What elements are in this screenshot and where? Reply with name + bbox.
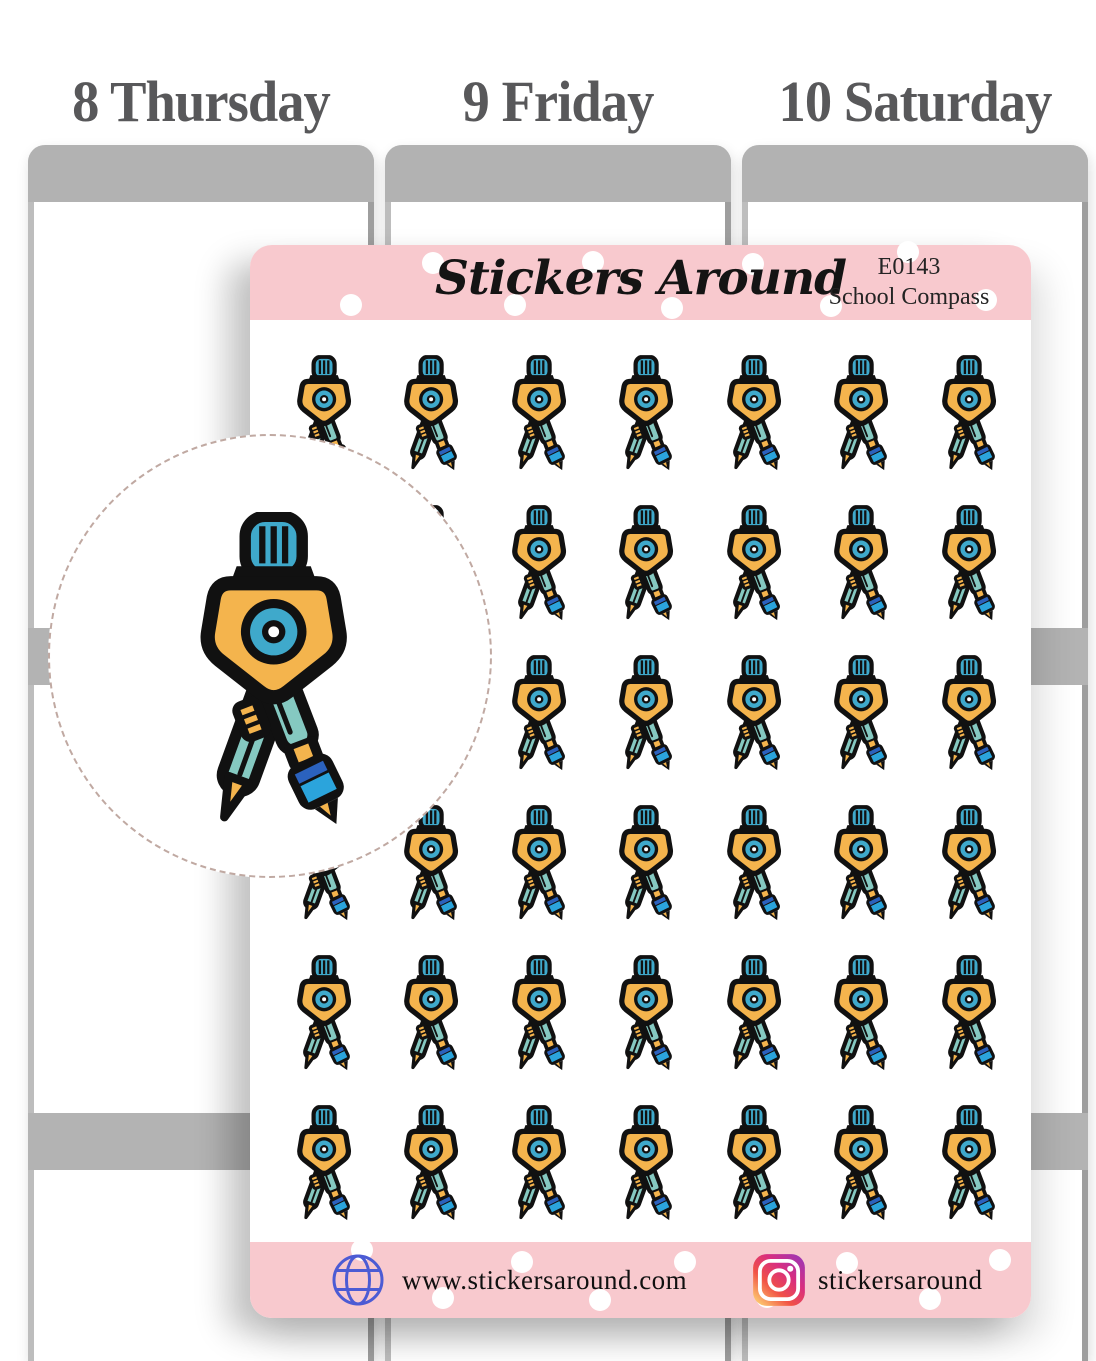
compass-sticker <box>483 655 591 805</box>
compass-sticker <box>698 805 806 955</box>
compass-sticker <box>913 655 1021 805</box>
planner-column-header <box>28 145 374 202</box>
compass-sticker <box>913 505 1021 655</box>
drafting-compass-icon <box>710 355 794 475</box>
compass-sticker <box>913 1105 1021 1255</box>
compass-sticker <box>483 1105 591 1255</box>
compass-sticker <box>376 1105 484 1255</box>
compass-sticker <box>591 505 699 655</box>
compass-sticker <box>698 655 806 805</box>
drafting-compass-icon <box>602 955 686 1075</box>
drafting-compass-icon-large <box>154 512 382 837</box>
globe-icon <box>330 1252 386 1308</box>
compass-sticker <box>483 355 591 505</box>
compass-sticker <box>268 955 376 1105</box>
drafting-compass-icon <box>817 505 901 625</box>
drafting-compass-icon <box>710 505 794 625</box>
drafting-compass-icon <box>495 655 579 775</box>
product-code-block: E0143 School Compass <box>801 252 1017 312</box>
compass-sticker <box>591 355 699 505</box>
drafting-compass-icon <box>387 1105 471 1225</box>
drafting-compass-icon <box>925 805 1009 925</box>
compass-sticker <box>591 655 699 805</box>
drafting-compass-icon <box>387 955 471 1075</box>
compass-sticker <box>698 1105 806 1255</box>
compass-sticker <box>806 505 914 655</box>
drafting-compass-icon <box>710 955 794 1075</box>
drafting-compass-icon <box>710 655 794 775</box>
compass-sticker <box>806 955 914 1105</box>
compass-sticker <box>483 955 591 1105</box>
day-label-friday: 9 Friday <box>395 68 720 124</box>
compass-sticker <box>806 655 914 805</box>
compass-sticker <box>591 1105 699 1255</box>
product-code: E0143 <box>801 252 1017 282</box>
drafting-compass-icon <box>710 805 794 925</box>
polka-dot <box>989 1249 1011 1271</box>
day-label-saturday: 10 Saturday <box>752 68 1077 124</box>
drafting-compass-icon <box>925 505 1009 625</box>
drafting-compass-icon <box>387 355 471 475</box>
drafting-compass-icon <box>495 955 579 1075</box>
drafting-compass-icon <box>925 355 1009 475</box>
instagram-handle: stickersaround <box>818 1242 982 1318</box>
day-label-thursday: 8 Thursday <box>38 68 363 124</box>
planner-column-header <box>385 145 731 202</box>
drafting-compass-icon <box>495 805 579 925</box>
sheet-header-band: Stickers Around E0143 School Compass <box>250 245 1031 320</box>
drafting-compass-icon <box>602 805 686 925</box>
compass-sticker <box>268 1105 376 1255</box>
compass-sticker <box>591 955 699 1105</box>
zoom-circle <box>48 434 492 878</box>
compass-sticker <box>591 805 699 955</box>
planner-column-header <box>742 145 1088 202</box>
drafting-compass-icon <box>925 955 1009 1075</box>
drafting-compass-icon <box>280 1105 364 1225</box>
drafting-compass-icon <box>602 505 686 625</box>
compass-sticker <box>913 955 1021 1105</box>
drafting-compass-icon <box>495 1105 579 1225</box>
drafting-compass-icon <box>817 355 901 475</box>
website-url: www.stickersaround.com <box>402 1242 687 1318</box>
drafting-compass-icon <box>602 1105 686 1225</box>
drafting-compass-icon <box>280 955 364 1075</box>
sheet-footer-band: www.stickersaround.com stickersaround <box>250 1242 1031 1318</box>
compass-sticker <box>913 805 1021 955</box>
compass-sticker <box>698 355 806 505</box>
compass-sticker <box>698 955 806 1105</box>
compass-sticker <box>913 355 1021 505</box>
drafting-compass-icon <box>602 655 686 775</box>
drafting-compass-icon <box>710 1105 794 1225</box>
drafting-compass-icon <box>925 1105 1009 1225</box>
drafting-compass-icon <box>817 805 901 925</box>
product-name: School Compass <box>801 282 1017 312</box>
compass-sticker <box>483 805 591 955</box>
drafting-compass-icon <box>817 655 901 775</box>
compass-sticker <box>806 1105 914 1255</box>
instagram-icon <box>752 1253 806 1307</box>
compass-sticker <box>698 505 806 655</box>
sticker-product-image: { "planner": { "days": [ { "label": "8 T… <box>0 0 1096 1361</box>
drafting-compass-icon <box>602 355 686 475</box>
drafting-compass-icon <box>495 355 579 475</box>
compass-sticker <box>806 355 914 505</box>
drafting-compass-icon <box>495 505 579 625</box>
drafting-compass-icon <box>817 955 901 1075</box>
drafting-compass-icon <box>925 655 1009 775</box>
compass-sticker <box>806 805 914 955</box>
drafting-compass-icon <box>817 1105 901 1225</box>
compass-sticker <box>376 955 484 1105</box>
compass-sticker <box>483 505 591 655</box>
